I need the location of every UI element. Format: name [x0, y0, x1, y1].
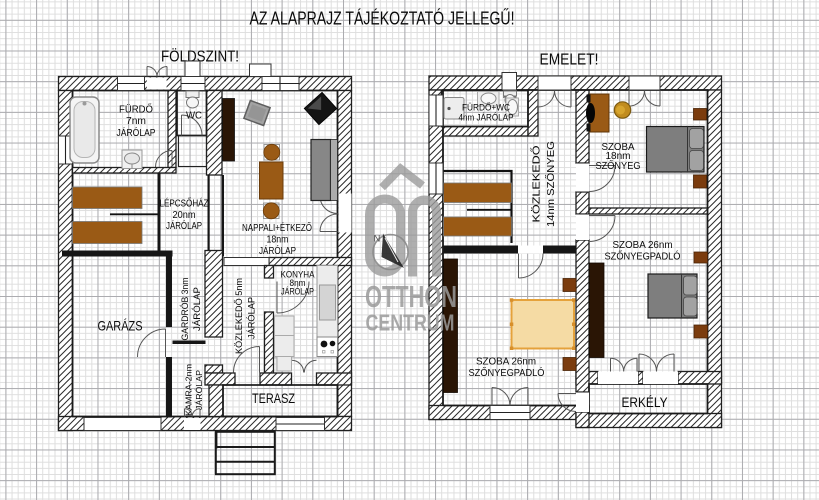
- svg-text:KAMRA-2nm: KAMRA-2nm: [184, 364, 194, 416]
- svg-text:JÁRÓLAP: JÁRÓLAP: [192, 287, 202, 331]
- svg-text:N: N: [374, 234, 381, 245]
- svg-text:AZ ALAPRAJZ TÁJÉKOZTATÓ JELLEG: AZ ALAPRAJZ TÁJÉKOZTATÓ JELLEGŰ!: [250, 8, 515, 29]
- svg-text:FÜRDŐ: FÜRDŐ: [119, 102, 153, 116]
- svg-text:14nm SZŐNYEG: 14nm SZŐNYEG: [543, 141, 557, 227]
- svg-text:20nm: 20nm: [173, 210, 196, 221]
- svg-text:LÉPCSŐHÁZ: LÉPCSŐHÁZ: [160, 196, 209, 210]
- svg-text:GARÁZS: GARÁZS: [98, 318, 143, 334]
- svg-text:FÜRDŐ+WC: FÜRDŐ+WC: [462, 103, 510, 113]
- svg-text:4nm JÁRÓLAP: 4nm JÁRÓLAP: [459, 113, 514, 123]
- svg-text:JÁRÓLAP: JÁRÓLAP: [117, 126, 156, 139]
- svg-text:WC: WC: [186, 110, 202, 122]
- svg-text:GARDRÓB 3nm: GARDRÓB 3nm: [180, 278, 190, 341]
- svg-text:EMELET!: EMELET!: [540, 52, 599, 69]
- svg-text:SZOBA 26nm: SZOBA 26nm: [613, 239, 673, 251]
- svg-text:JÁRÓLAP: JÁRÓLAP: [281, 287, 314, 297]
- svg-text:SZŐNYEGPADLÓ: SZŐNYEGPADLÓ: [605, 249, 681, 263]
- svg-text:SZŐNYEGPADLÓ: SZŐNYEGPADLÓ: [469, 365, 545, 379]
- svg-text:18nm: 18nm: [267, 234, 289, 246]
- svg-text:JÁRÓLAP: JÁRÓLAP: [194, 370, 204, 410]
- svg-text:JÁRÓLAP: JÁRÓLAP: [166, 219, 202, 232]
- svg-text:CENTRUM: CENTRUM: [366, 310, 455, 336]
- svg-text:7nm: 7nm: [126, 115, 146, 127]
- svg-text:SZŐNYEG: SZŐNYEG: [596, 158, 641, 172]
- svg-text:SZOBA 26nm: SZOBA 26nm: [476, 356, 536, 368]
- svg-text:ERKÉLY: ERKÉLY: [622, 395, 668, 410]
- svg-text:JÁRÓLAP: JÁRÓLAP: [247, 297, 258, 339]
- svg-text:JÁRÓLAP: JÁRÓLAP: [259, 244, 296, 257]
- svg-text:KÖZLEKEDŐ: KÖZLEKEDŐ: [529, 146, 543, 223]
- svg-text:KÖZLEKEDŐ 5nm: KÖZLEKEDŐ 5nm: [234, 278, 245, 354]
- svg-text:TERASZ: TERASZ: [252, 390, 295, 406]
- svg-text:NAPPALI+ÉTKEZŐ: NAPPALI+ÉTKEZŐ: [242, 220, 312, 234]
